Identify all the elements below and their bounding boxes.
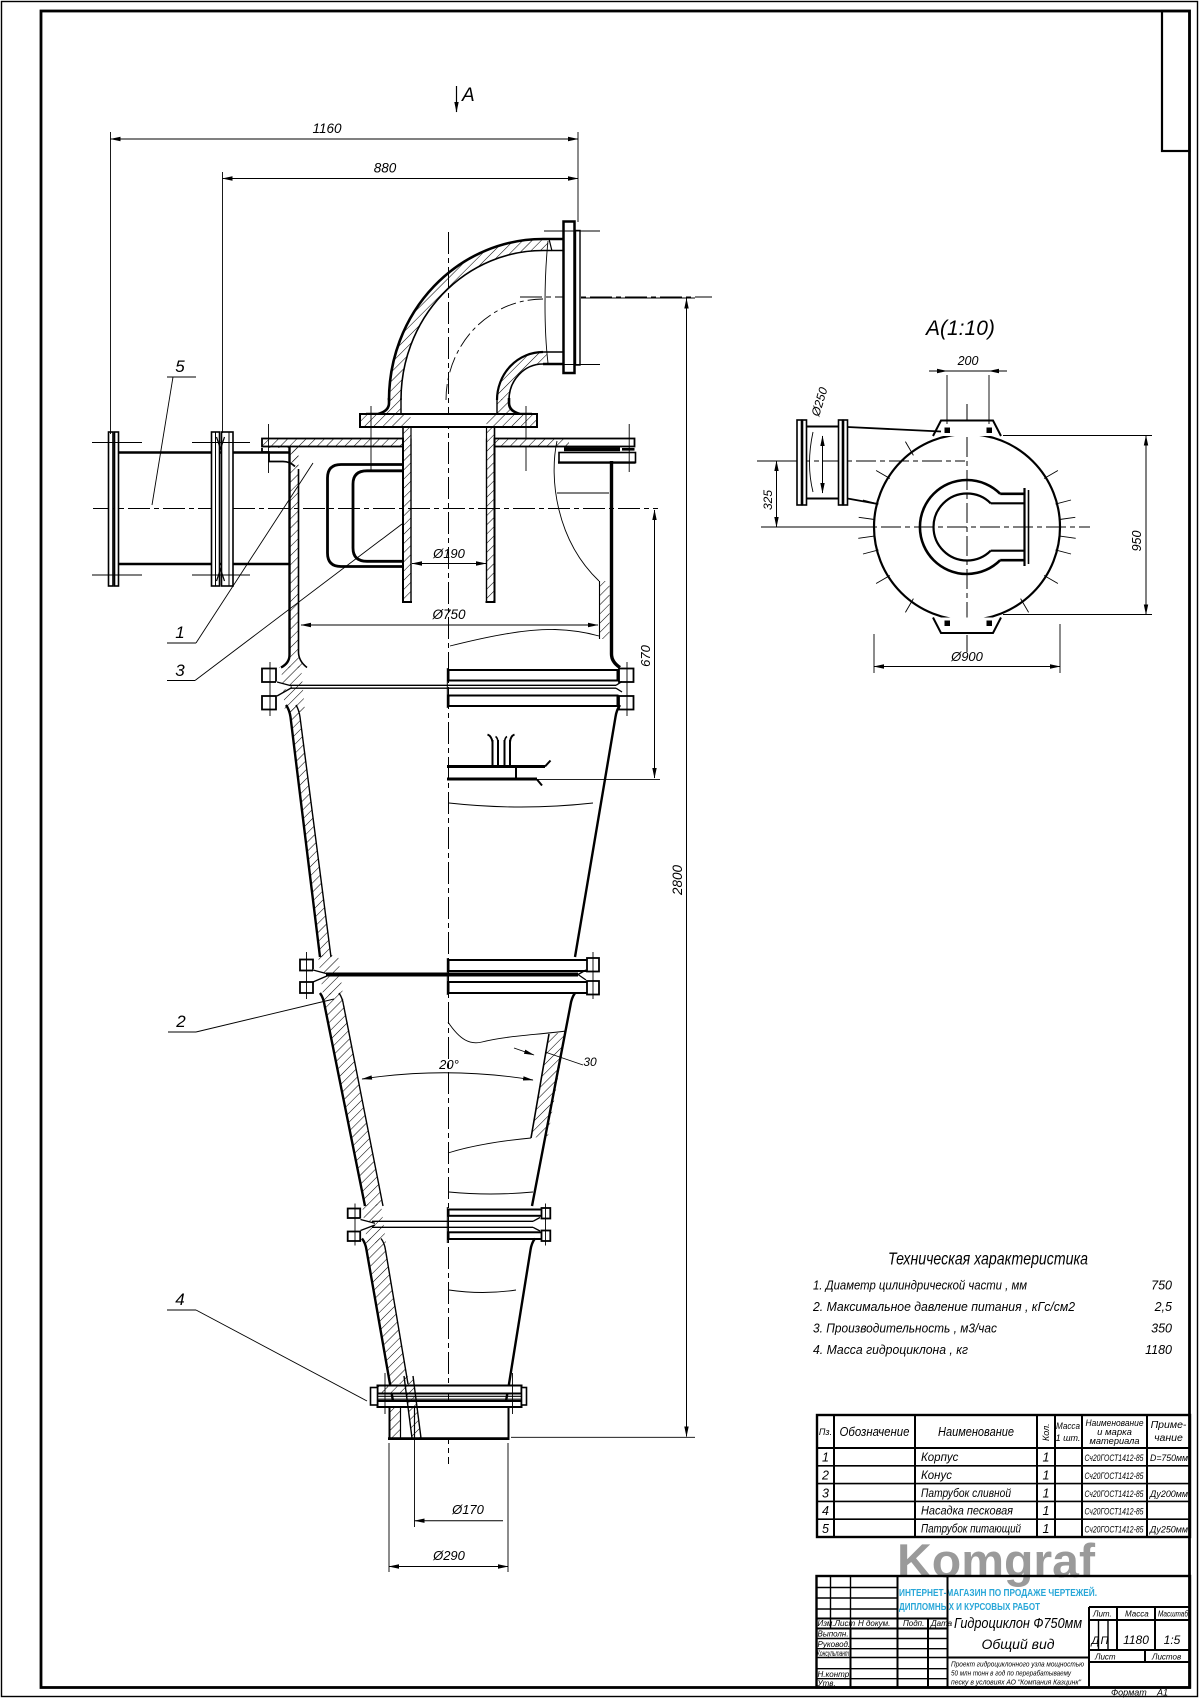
svg-text:Листов: Листов (1151, 1653, 1181, 1662)
svg-text:1: 1 (822, 1451, 829, 1465)
svg-text:2: 2 (821, 1469, 829, 1483)
svg-text:Ø170: Ø170 (451, 1502, 485, 1517)
svg-text:ДИПЛОМНЫХ И КУРСОВЫХ РАБОТ: ДИПЛОМНЫХ И КУРСОВЫХ РАБОТ (899, 1601, 1040, 1613)
svg-text:Сч20ГОСТ1412-85: Сч20ГОСТ1412-85 (1085, 1507, 1145, 1518)
svg-text:50 млн тонн в год по перерабат: 50 млн тонн в год по перерабатываему (951, 1670, 1071, 1678)
svg-text:4: 4 (175, 1290, 184, 1309)
svg-text:Формат: Формат (1111, 1688, 1147, 1698)
svg-text:Масса: Масса (1125, 1610, 1149, 1619)
svg-text:Корпус: Корпус (921, 1452, 959, 1464)
svg-text:Ø290: Ø290 (432, 1548, 466, 1563)
svg-text:2. Максимальное давление пита: 2. Максимальное давление питания , кГс/с… (812, 1300, 1075, 1314)
svg-text:ИНТЕРНЕТ-МАГАЗИН ПО ПРОДАЖЕ ЧЕ: ИНТЕРНЕТ-МАГАЗИН ПО ПРОДАЖЕ ЧЕРТЕЖЕЙ. (899, 1586, 1097, 1599)
svg-text:песку в условиях АО "Компания: песку в условиях АО "Компания Казцинк" (951, 1680, 1081, 1687)
svg-text:1:5: 1:5 (1164, 1633, 1181, 1647)
svg-text:1. Диаметр цилиндрической час: 1. Диаметр цилиндрической части , мм (813, 1279, 1027, 1293)
svg-text:Komgraf: Komgraf (897, 1534, 1095, 1587)
svg-text:Выполн.: Выполн. (818, 1630, 849, 1639)
svg-text:Проект гидроциклонного узла мо: Проект гидроциклонного узла мощностью (951, 1661, 1085, 1669)
svg-text:D=750мм: D=750мм (1150, 1453, 1188, 1464)
svg-text:Ø900: Ø900 (950, 649, 984, 664)
svg-text:Консультант: Консультант (817, 1649, 849, 1658)
svg-text:Насадка песковая: Насадка песковая (921, 1506, 1013, 1518)
svg-text:Гидроциклон Ф750мм: Гидроциклон Ф750мм (954, 1615, 1082, 1632)
svg-text:Дата: Дата (930, 1619, 953, 1628)
svg-text:Сч20ГОСТ1412-85: Сч20ГОСТ1412-85 (1085, 1489, 1145, 1500)
svg-text:670: 670 (638, 644, 653, 666)
svg-text:Руковод.: Руковод. (818, 1640, 851, 1649)
svg-text:Ø190: Ø190 (432, 546, 466, 561)
svg-text:материала: материала (1090, 1436, 1140, 1447)
svg-text:1 шт.: 1 шт. (1056, 1433, 1081, 1443)
svg-text:30: 30 (583, 1055, 597, 1069)
svg-text:Сч20ГОСТ1412-85: Сч20ГОСТ1412-85 (1085, 1471, 1145, 1482)
svg-text:A(1:10): A(1:10) (924, 317, 995, 340)
svg-text:1: 1 (1043, 1451, 1050, 1465)
svg-text:П: П (1101, 1635, 1109, 1647)
svg-text:Масса: Масса (1056, 1421, 1080, 1431)
svg-text:880: 880 (374, 161, 397, 176)
svg-text:3: 3 (822, 1487, 829, 1501)
svg-text:1: 1 (1043, 1487, 1050, 1501)
svg-text:4: 4 (822, 1504, 829, 1518)
svg-text:Обозначение: Обозначение (840, 1424, 910, 1439)
svg-text:1180: 1180 (1145, 1343, 1172, 1357)
svg-text:1: 1 (1043, 1469, 1050, 1483)
svg-text:Приме-: Приме- (1151, 1419, 1187, 1431)
svg-text:Масштаб: Масштаб (1158, 1610, 1188, 1619)
svg-text:1160: 1160 (312, 121, 342, 136)
svg-text:Ду250мм: Ду250мм (1149, 1525, 1188, 1536)
svg-text:Ø750: Ø750 (431, 607, 466, 622)
svg-text:325: 325 (761, 490, 775, 510)
svg-text:4. Масса гидроциклона , кг: 4. Масса гидроциклона , кг (813, 1343, 968, 1357)
svg-text:Н.контр.: Н.контр. (818, 1670, 852, 1679)
svg-text:чание: чание (1154, 1432, 1183, 1444)
svg-text:Наименование: Наименование (938, 1424, 1014, 1439)
svg-text:Конус: Конус (921, 1470, 952, 1482)
svg-text:2,5: 2,5 (1154, 1300, 1172, 1314)
svg-text:1180: 1180 (1123, 1633, 1149, 1647)
svg-text:А1: А1 (1156, 1688, 1168, 1698)
svg-text:2: 2 (175, 1012, 186, 1031)
svg-text:Изм.Лист: Изм.Лист (818, 1619, 856, 1628)
svg-text:1: 1 (175, 623, 184, 642)
svg-text:5: 5 (175, 357, 185, 376)
svg-text:Лист: Лист (1094, 1653, 1116, 1662)
svg-text:750: 750 (1151, 1279, 1172, 1293)
svg-text:5: 5 (822, 1522, 829, 1536)
svg-text:200: 200 (957, 354, 979, 368)
svg-text:1: 1 (1043, 1504, 1050, 1518)
svg-text:Д: Д (1090, 1635, 1100, 1647)
svg-text:Техническая характеристика: Техническая характеристика (888, 1249, 1088, 1269)
svg-text:2800: 2800 (670, 864, 685, 896)
svg-text:Ду200мм: Ду200мм (1149, 1489, 1188, 1500)
svg-text:350: 350 (1151, 1322, 1172, 1336)
svg-text:Пз.: Пз. (819, 1427, 832, 1437)
svg-text:Н докум.: Н докум. (858, 1619, 890, 1628)
svg-text:Патрубок сливной: Патрубок сливной (921, 1488, 1012, 1500)
svg-text:3: 3 (175, 661, 185, 680)
svg-text:Общий вид: Общий вид (982, 1636, 1055, 1652)
svg-text:Подп.: Подп. (903, 1619, 924, 1628)
svg-text:950: 950 (1130, 531, 1144, 552)
svg-text:3. Производительность , м3/ча: 3. Производительность , м3/час (813, 1322, 998, 1336)
svg-text:Кол.: Кол. (1041, 1423, 1051, 1441)
svg-text:Утв.: Утв. (817, 1679, 836, 1688)
svg-text:Лит.: Лит. (1092, 1610, 1112, 1619)
svg-text:Сч20ГОСТ1412-85: Сч20ГОСТ1412-85 (1085, 1453, 1145, 1464)
svg-text:A: A (461, 85, 475, 106)
svg-text:20°: 20° (438, 1057, 459, 1072)
